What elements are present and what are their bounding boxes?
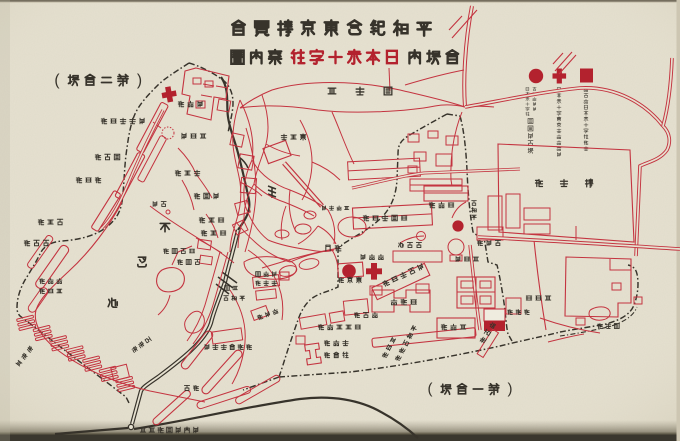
svg-text:(: (	[54, 72, 60, 89]
svg-text:): )	[137, 72, 142, 89]
svg-text:): )	[508, 381, 513, 398]
svg-text:(: (	[428, 381, 433, 398]
